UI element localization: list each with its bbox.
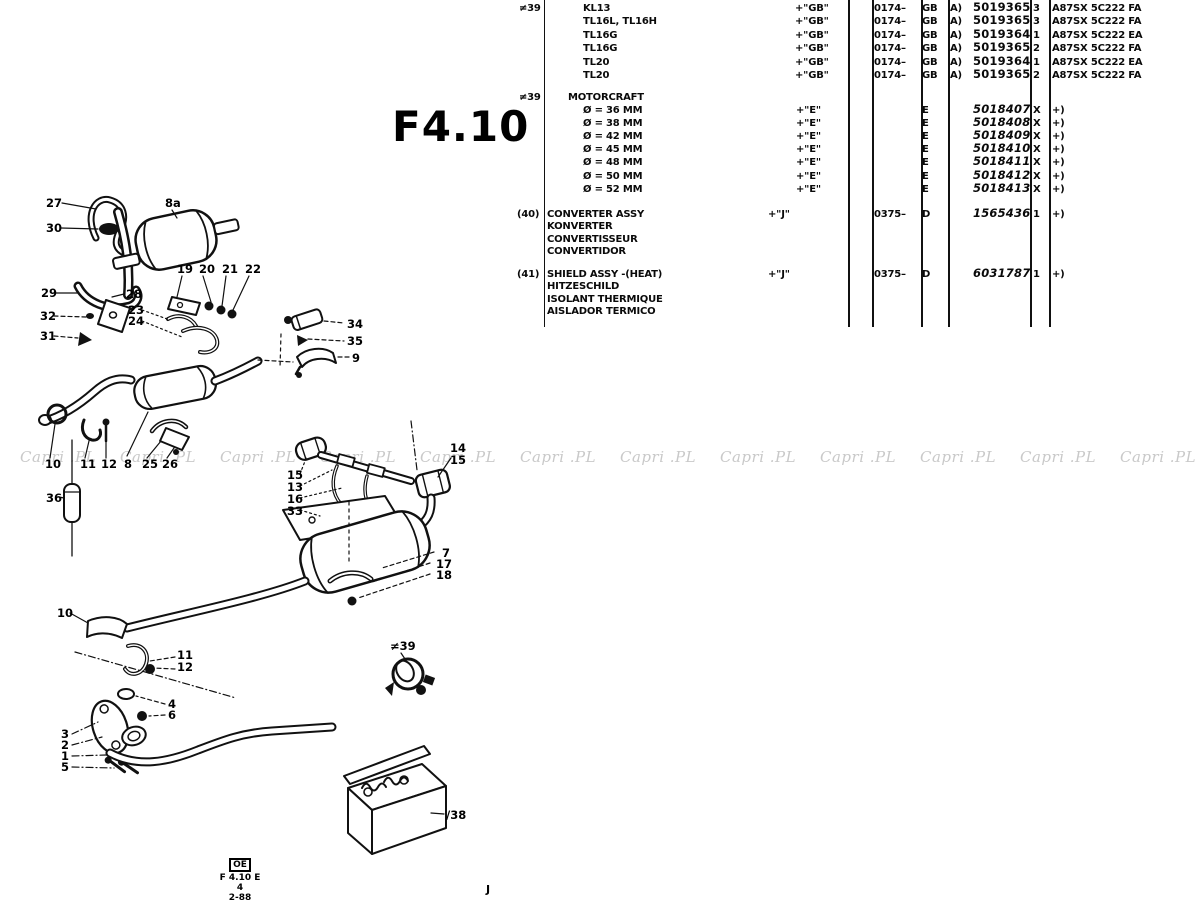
quantity: 1 — [1033, 57, 1040, 68]
pipe-clamps — [284, 308, 336, 378]
note-code: +) — [1052, 131, 1065, 142]
model-name: TL16G — [583, 30, 617, 41]
note-code: +) — [1052, 118, 1065, 129]
callout-label: 8 — [124, 457, 132, 471]
quantity: 3 — [1033, 16, 1040, 27]
market-code: GB — [922, 70, 937, 81]
callout-label: 8a — [165, 196, 181, 210]
fitment-code: +"E" — [796, 144, 821, 155]
callout-label: 34 — [347, 317, 363, 331]
date-code: 0174– — [874, 57, 906, 68]
quantity: 3 — [1033, 3, 1040, 14]
part-number: 5019364 — [973, 56, 1030, 67]
damper-36 — [64, 440, 80, 556]
callout-label: 29 — [41, 286, 57, 300]
description-line: ISOLANT THERMIQUE — [547, 294, 663, 305]
market-code: E — [922, 105, 929, 116]
market-code: GB — [922, 30, 937, 41]
table-rule — [1049, 0, 1051, 327]
diameter-spec: Ø = 42 MM — [583, 131, 642, 142]
note-code: +) — [1052, 209, 1065, 220]
model-name: TL16G — [583, 43, 617, 54]
fitment-code: +"GB" — [795, 43, 829, 54]
muffler-mounting-parts — [168, 297, 237, 352]
date-code: 0174– — [874, 3, 906, 14]
callout-label: 20 — [199, 262, 215, 276]
callout-label: 11 — [80, 457, 96, 471]
footer-fiche-code: F 4.10 E 4 — [219, 873, 261, 893]
diameter-spec: Ø = 45 MM — [583, 144, 642, 155]
table-callout: (41) — [517, 269, 539, 280]
callout-label: 27 — [46, 196, 62, 210]
quantity: 2 — [1033, 70, 1040, 81]
part-number: 5019365 — [973, 69, 1030, 80]
description-line: HITZESCHILD — [547, 281, 619, 292]
table-callout: (40) — [517, 209, 539, 220]
callout-label: 9 — [352, 351, 360, 365]
diameter-spec: Ø = 50 MM — [583, 171, 642, 182]
note-code: A87SX 5C222 FA — [1052, 3, 1141, 14]
quantity: 1 — [1033, 209, 1040, 220]
callout-label: 19 — [177, 262, 193, 276]
quantity: X — [1033, 144, 1041, 155]
description-line: AISLADOR TERMICO — [547, 306, 655, 317]
description-line: SHIELD ASSY -(HEAT) — [547, 269, 662, 280]
quantity: X — [1033, 171, 1041, 182]
callout-label: 28 — [126, 287, 142, 301]
market-code: GB — [922, 57, 937, 68]
callout-label: 25 — [142, 457, 158, 471]
quantity: X — [1033, 157, 1041, 168]
part-number: 5018411 — [973, 156, 1030, 167]
callout-label: 5 — [61, 760, 69, 774]
part-prefix: A) — [950, 30, 962, 41]
callout-label: 30 — [46, 221, 62, 235]
callout-label: 12 — [177, 660, 193, 674]
fitment-code: +"J" — [768, 269, 790, 280]
date-code: 0174– — [874, 70, 906, 81]
model-name: KL13 — [583, 3, 610, 14]
clamp-39 — [385, 657, 435, 696]
market-code: E — [922, 118, 929, 129]
fitment-code: +"GB" — [795, 57, 829, 68]
note-code: +) — [1052, 144, 1065, 155]
note-code: +) — [1052, 157, 1065, 168]
footer-letter: J — [486, 883, 490, 896]
quantity: X — [1033, 105, 1041, 116]
part-number: 5018408 — [973, 117, 1030, 128]
part-prefix: A) — [950, 16, 962, 27]
date-code: 0375– — [874, 209, 906, 220]
description-line: CONVERTIDOR — [547, 246, 626, 257]
diameter-spec: Ø = 48 MM — [583, 157, 642, 168]
callout-label: 24 — [128, 314, 144, 328]
part-prefix: A) — [950, 57, 962, 68]
callout-label: 32 — [40, 309, 56, 323]
table-rule — [544, 0, 546, 327]
quantity: X — [1033, 184, 1041, 195]
quantity: X — [1033, 131, 1041, 142]
description-line: KONVERTER — [547, 221, 613, 232]
table-callout: ≠39 — [519, 92, 541, 103]
brand-name: MOTORCRAFT — [568, 92, 644, 103]
callout-label: 10 — [57, 606, 73, 620]
market-code: E — [922, 144, 929, 155]
market-code: E — [922, 131, 929, 142]
quantity: 1 — [1033, 269, 1040, 280]
market-code: GB — [922, 16, 937, 27]
note-code: A87SX 5C222 EA — [1052, 57, 1142, 68]
note-code: A87SX 5C222 EA — [1052, 30, 1142, 41]
market-code: D — [922, 209, 930, 220]
quantity: 1 — [1033, 30, 1040, 41]
part-number: 5018410 — [973, 143, 1030, 154]
fitment-code: +"E" — [796, 171, 821, 182]
market-code: GB — [922, 3, 937, 14]
page-title: F4.10 — [392, 102, 529, 151]
note-code: +) — [1052, 184, 1065, 195]
callout-label: 6 — [168, 708, 176, 722]
kit-box-38 — [344, 746, 446, 854]
callout-label: 33 — [287, 504, 303, 518]
fitment-code: +"J" — [768, 209, 790, 220]
part-number: 5018413 — [973, 183, 1030, 194]
table-rule — [848, 0, 850, 327]
description-line: CONVERTISSEUR — [547, 234, 638, 245]
date-code: 0174– — [874, 30, 906, 41]
part-number: 5018407 — [973, 104, 1030, 115]
callout-label: ≠39 — [390, 639, 416, 653]
callout-label: 31 — [40, 329, 56, 343]
footer-oe-mark: OE — [229, 858, 251, 872]
part-number: 5018409 — [973, 130, 1030, 141]
part-number: 5019364 — [973, 29, 1030, 40]
callout-label: 12 — [101, 457, 117, 471]
part-number: 5019365 — [973, 42, 1030, 53]
callout-label: 35 — [347, 334, 363, 348]
callout-label: 36 — [46, 491, 62, 505]
note-code: A87SX 5C222 FA — [1052, 43, 1141, 54]
market-code: E — [922, 184, 929, 195]
callout-label: 21 — [222, 262, 238, 276]
date-code: 0375– — [874, 269, 906, 280]
fitment-code: +"E" — [796, 118, 821, 129]
footer-date: 2-88 — [219, 893, 261, 903]
fitment-code: +"E" — [796, 131, 821, 142]
diameter-spec: Ø = 36 MM — [583, 105, 642, 116]
callout-label: /38 — [446, 808, 466, 822]
fitment-code: +"GB" — [795, 3, 829, 14]
part-prefix: A) — [950, 70, 962, 81]
market-code: E — [922, 157, 929, 168]
table-callout: ≠39 — [519, 3, 541, 14]
part-number: 6031787 — [973, 268, 1030, 279]
market-code: GB — [922, 43, 937, 54]
diameter-spec: Ø = 38 MM — [583, 118, 642, 129]
model-name: TL16L, TL16H — [583, 16, 657, 27]
callout-label: 10 — [45, 457, 61, 471]
date-code: 0174– — [874, 16, 906, 27]
part-number: 5019365 — [973, 15, 1030, 26]
part-number: 5019365 — [973, 2, 1030, 13]
callout-label: 15 — [450, 453, 466, 467]
model-name: TL20 — [583, 70, 609, 81]
fitment-code: +"E" — [796, 157, 821, 168]
fitment-code: +"E" — [796, 184, 821, 195]
part-prefix: A) — [950, 3, 962, 14]
footer-block: OE F 4.10 E 4 2-88 — [219, 852, 261, 903]
note-code: +) — [1052, 269, 1065, 280]
callout-label: 22 — [245, 262, 261, 276]
market-code: E — [922, 171, 929, 182]
fitment-code: +"GB" — [795, 30, 829, 41]
quantity: X — [1033, 118, 1041, 129]
date-code: 0174– — [874, 43, 906, 54]
market-code: D — [922, 269, 930, 280]
note-code: +) — [1052, 105, 1065, 116]
note-code: A87SX 5C222 FA — [1052, 16, 1141, 27]
note-code: +) — [1052, 171, 1065, 182]
catalog-page: Capri .PLCapri .PLCapri .PLCapri .PLCapr… — [0, 0, 1200, 905]
part-prefix: A) — [950, 43, 962, 54]
callout-label: 18 — [436, 568, 452, 582]
fitment-code: +"GB" — [795, 70, 829, 81]
fitment-code: +"E" — [796, 105, 821, 116]
callout-label: 26 — [162, 457, 178, 471]
part-number: 1565436 — [973, 208, 1030, 219]
fitment-code: +"GB" — [795, 16, 829, 27]
diameter-spec: Ø = 52 MM — [583, 184, 642, 195]
model-name: TL20 — [583, 57, 609, 68]
note-code: A87SX 5C222 FA — [1052, 70, 1141, 81]
quantity: 2 — [1033, 43, 1040, 54]
part-number: 5018412 — [973, 170, 1030, 181]
description-line: CONVERTER ASSY — [547, 209, 644, 220]
